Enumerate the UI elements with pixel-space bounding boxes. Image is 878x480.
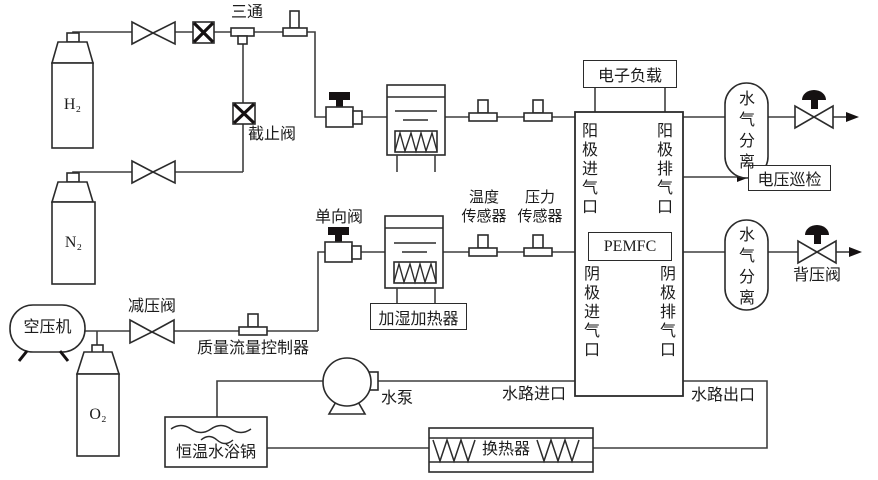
electronic-load-box: 电子负载 [583, 60, 677, 88]
anode-humidifier-vessel [387, 85, 445, 172]
electronic-load-leads [595, 88, 665, 112]
pemfc-label-box: PEMFC [588, 232, 672, 261]
humidifier-heater-box: 加湿加热器 [370, 303, 467, 330]
pressure-sensor-label-line1: 压力 [510, 189, 570, 208]
anode-back-pressure-valve [795, 90, 833, 128]
tee-fitting [231, 28, 254, 44]
anode-pressure-sensor [524, 100, 552, 121]
anode-check-valve [326, 92, 362, 127]
h2-line-solenoid-valve [193, 22, 214, 43]
cathode-pressure-sensor [524, 235, 552, 256]
voltage-monitor-box: 电压巡检 [748, 165, 831, 191]
mass-flow-controller-label: 质量流量控制器 [197, 340, 309, 358]
water-pump-label: 水泵 [381, 390, 413, 408]
air-compressor-label: 空压机 [10, 319, 85, 337]
pemfc-test-system-diagram: H₂ N₂ O₂ 空压机 三通 截止阀 单向阀 减压阀 质量流量控制器 背压阀 … [0, 0, 878, 480]
water-bath-label: 恒温水浴锅 [167, 444, 265, 462]
temperature-sensor-label: 温度 传感器 [454, 189, 514, 227]
air-mass-flow-controller [239, 314, 267, 335]
water-inlet-label: 水路进口 [502, 386, 566, 404]
cathode-exhaust-arrow [849, 247, 862, 257]
cathode-humidifier-vessel [385, 216, 443, 303]
h2-cylinder [52, 33, 93, 148]
h2-mass-flow-controller [283, 11, 307, 36]
pressure-reducing-valve-label: 减压阀 [128, 298, 176, 316]
pipe-n2-purge-line [73, 44, 243, 178]
n2-cylinder-valve [132, 161, 175, 183]
o2-cylinder-label: O₂ [77, 406, 119, 424]
anode-exhaust-arrow [846, 112, 859, 122]
shutoff-valve-label: 截止阀 [248, 126, 296, 144]
cathode-check-valve [325, 227, 361, 262]
tee-label: 三通 [231, 4, 263, 22]
temperature-sensor-label-line1: 温度 [454, 189, 514, 208]
cathode-outlet-label: 阴极排气口 [657, 265, 673, 360]
cathode-back-pressure-valve [798, 225, 836, 263]
anode-temperature-sensor [469, 100, 497, 121]
anode-inlet-label: 阳极进气口 [579, 122, 595, 217]
anode-outlet-label: 阳极排气口 [654, 122, 670, 217]
pressure-sensor-label: 压力 传感器 [510, 189, 570, 227]
water-pump-symbol [323, 358, 378, 414]
n2-cylinder [52, 173, 95, 284]
n2-cylinder-label: N₂ [52, 234, 95, 252]
cathode-inlet-label: 阴极进气口 [581, 265, 597, 360]
back-pressure-valve-label: 背压阀 [793, 267, 841, 285]
o2-cylinder [77, 345, 119, 456]
water-outlet-label: 水路出口 [691, 387, 755, 405]
h2-cylinder-valve [132, 22, 175, 44]
check-valve-label: 单向阀 [315, 209, 363, 227]
anode-separator-label: 水气分离 [736, 90, 752, 174]
cathode-separator-label: 水气分离 [736, 226, 752, 310]
pressure-reducing-valve [130, 320, 174, 343]
pressure-sensor-label-line2: 传感器 [510, 208, 570, 227]
shutoff-valve [233, 103, 255, 124]
temperature-sensor-label-line2: 传感器 [454, 208, 514, 227]
h2-cylinder-label: H₂ [52, 96, 93, 114]
heat-exchanger-label: 换热器 [478, 441, 534, 459]
cathode-temperature-sensor [469, 235, 497, 256]
